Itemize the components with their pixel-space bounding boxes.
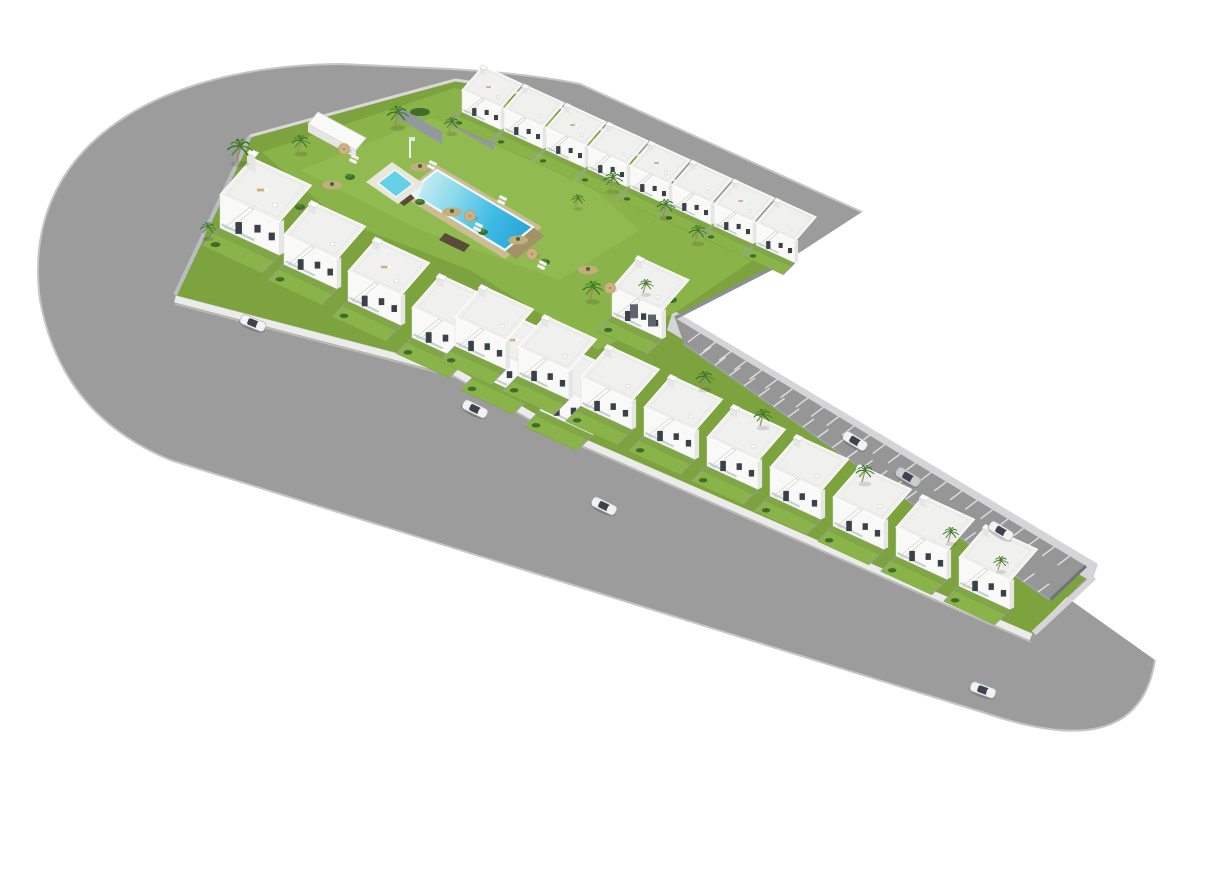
house-side [695, 429, 699, 460]
door [657, 431, 663, 441]
garden-hedge [708, 235, 715, 238]
garden-hedge [404, 350, 413, 354]
window [560, 380, 565, 387]
ac-unit [748, 210, 751, 212]
ac-unit [331, 243, 335, 246]
roof-table [516, 338, 519, 341]
window [641, 313, 646, 320]
door [472, 108, 476, 116]
window [494, 115, 498, 120]
wall-planting-1 [410, 108, 430, 116]
house-side [1010, 579, 1014, 610]
door [598, 165, 602, 173]
ac-unit [626, 385, 630, 388]
garden-hedge [447, 358, 456, 362]
window [749, 470, 754, 477]
garden-hedge [540, 159, 547, 162]
window [695, 205, 699, 210]
anthracite-panel [630, 304, 638, 318]
ac-unit [622, 153, 625, 155]
door [909, 551, 915, 561]
door [514, 127, 518, 135]
door [556, 146, 560, 154]
window [569, 148, 573, 153]
window [746, 229, 750, 234]
door [531, 371, 537, 381]
roof-lounger [570, 124, 575, 126]
door [362, 296, 368, 307]
ac-unit [878, 505, 882, 508]
ac-unit [664, 172, 667, 174]
garden-hedge [211, 242, 221, 247]
ac-unit [496, 96, 499, 98]
house-side [758, 459, 762, 490]
ac-unit [1004, 565, 1008, 568]
house-side [585, 145, 588, 168]
window [485, 343, 490, 350]
door [640, 184, 644, 192]
door [972, 581, 978, 591]
garden-hedge [340, 314, 349, 318]
window [800, 493, 805, 500]
window [254, 225, 260, 233]
garden-hedge [951, 598, 960, 602]
roof-lounger [257, 189, 264, 192]
window [536, 134, 540, 139]
window [653, 186, 657, 191]
window [926, 553, 931, 560]
window [497, 350, 502, 357]
house-side [662, 309, 666, 339]
door [682, 203, 686, 211]
house-side [947, 549, 951, 580]
door [235, 222, 242, 234]
house-side [506, 339, 510, 370]
gravel-bed [410, 163, 430, 172]
window [391, 305, 397, 312]
window [379, 298, 385, 305]
house-side [821, 489, 825, 520]
pool-shower-head [410, 137, 415, 141]
house-side [884, 519, 888, 550]
garden-hedge [888, 568, 897, 572]
window [620, 172, 624, 177]
garden-hedge [750, 254, 757, 257]
ac-unit [941, 535, 945, 538]
anthracite-panel [648, 315, 656, 327]
ac-unit [752, 445, 756, 448]
ac-unit [815, 475, 819, 478]
garden-hedge [762, 508, 771, 512]
door [426, 332, 432, 343]
window [443, 335, 449, 342]
roof-table [388, 265, 391, 268]
window [737, 224, 741, 229]
door [625, 311, 631, 321]
gravel-bed [322, 181, 342, 190]
ac-unit [563, 355, 567, 358]
window [485, 110, 489, 115]
garden-hedge [573, 418, 582, 422]
house-side [795, 240, 798, 263]
house-side [627, 164, 630, 187]
house-side [401, 294, 405, 326]
window [315, 262, 321, 269]
roof-lounger [381, 266, 387, 269]
window [989, 583, 994, 590]
garden-hedge [498, 140, 505, 143]
house-side [753, 221, 756, 244]
house-side [543, 126, 546, 149]
window [548, 373, 553, 380]
door [594, 401, 600, 411]
ac-unit [790, 229, 793, 231]
roof-table [576, 124, 578, 126]
garden-hedge [604, 328, 612, 332]
roof-lounger [654, 162, 659, 164]
window [737, 463, 742, 470]
house-side [569, 369, 573, 400]
garden-hedge [699, 478, 708, 482]
garden-hedge [624, 197, 631, 200]
roof-table [492, 86, 494, 88]
house-side [337, 257, 341, 289]
garden-hedge [825, 538, 834, 542]
house-side [279, 220, 284, 256]
gravel-bed [442, 208, 462, 217]
window [269, 233, 275, 241]
door [468, 341, 474, 351]
ac-unit [272, 203, 277, 207]
window [527, 129, 531, 134]
window [507, 371, 513, 378]
window [788, 248, 792, 253]
door [724, 222, 728, 230]
garden-hedge [636, 448, 645, 452]
door [766, 241, 770, 249]
window [812, 500, 817, 507]
garden-hedge [532, 423, 541, 427]
roof-table [660, 162, 662, 164]
ac-unit [580, 134, 583, 136]
window [875, 530, 880, 537]
garden-hedge [276, 277, 285, 281]
window [662, 191, 666, 196]
window [611, 403, 616, 410]
door [298, 259, 304, 270]
window [704, 210, 708, 215]
ac-unit [395, 279, 399, 282]
window [611, 167, 615, 172]
gravel-bed [578, 266, 598, 275]
door [783, 491, 789, 501]
render-canvas [0, 0, 1221, 877]
gravel-bed [508, 236, 528, 245]
window [578, 153, 582, 158]
window [674, 433, 679, 440]
garden-hedge [510, 388, 519, 392]
ac-unit [538, 115, 541, 117]
garden-hedge [468, 387, 477, 391]
window [686, 440, 691, 447]
aerial-render-image [0, 0, 1221, 877]
garden-hedge [582, 178, 589, 181]
ac-unit [706, 191, 709, 193]
door [846, 521, 852, 531]
house-side [501, 107, 504, 130]
window [327, 269, 333, 276]
window [863, 523, 868, 530]
ac-unit [500, 325, 504, 328]
window [623, 410, 628, 417]
roof-table [265, 188, 268, 191]
door [720, 461, 726, 471]
house-side [632, 399, 636, 430]
roof-lounger [738, 200, 743, 202]
house-side [711, 202, 714, 225]
roof-table [744, 200, 746, 202]
roof-lounger [486, 86, 491, 88]
ac-unit [656, 295, 660, 298]
window [779, 243, 783, 248]
ac-unit [689, 415, 693, 418]
window [938, 560, 943, 567]
window [1001, 590, 1006, 597]
